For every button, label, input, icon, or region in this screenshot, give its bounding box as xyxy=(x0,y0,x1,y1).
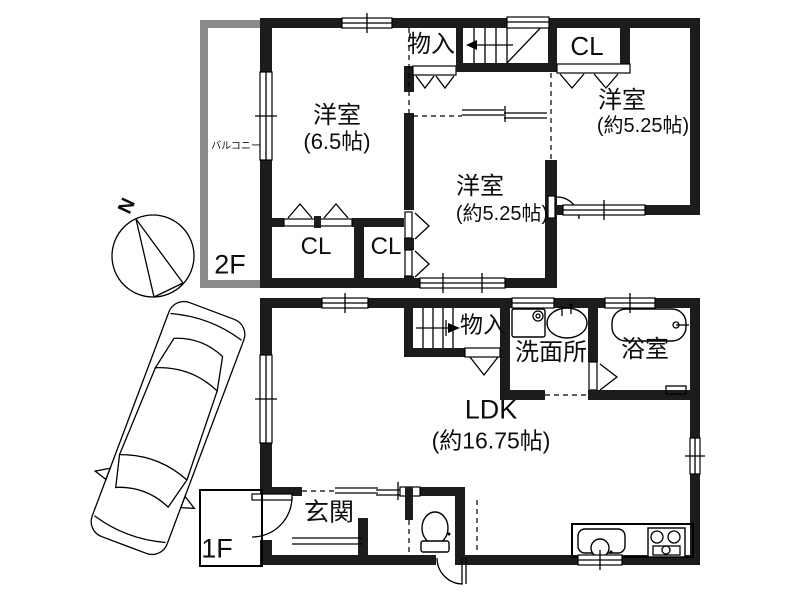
car xyxy=(74,292,261,563)
room-2f-west-name: 洋室 xyxy=(313,104,361,128)
ldk-name-label: LDK xyxy=(465,397,518,424)
kitchen-counter xyxy=(572,524,693,557)
floor-1f-label: 1F xyxy=(201,536,233,563)
washroom-label: 洗面所 xyxy=(515,341,587,365)
floor-plan-page: 洋室 (6.5帖) 物入 CL 洋室 (約5.25帖) 洋室 (約5.25帖) … xyxy=(0,0,800,600)
north-arrow xyxy=(112,215,194,297)
room-2f-mid-name: 洋室 xyxy=(456,175,504,199)
room-2f-west-size: (6.5帖) xyxy=(303,131,370,153)
ldk-size-label: (約16.75帖) xyxy=(432,430,551,453)
storage-1f-label: 物入 xyxy=(460,314,506,337)
room-2f-mid-size: (約5.25帖) xyxy=(456,204,548,224)
closet-2f-sw-label: CL xyxy=(301,235,332,259)
closet-2f-top-label: CL xyxy=(570,33,603,59)
room-2f-east-name: 洋室 xyxy=(598,89,646,113)
washroom-fixtures xyxy=(512,304,587,339)
balcony-label: バルコニー xyxy=(211,142,261,152)
floorplan-canvas xyxy=(0,0,800,600)
bathroom-label: 浴室 xyxy=(621,338,669,362)
room-2f-east-size: (約5.25帖) xyxy=(597,116,689,136)
floor-2f-label: 2F xyxy=(214,252,246,279)
entrance-label: 玄関 xyxy=(304,501,354,526)
closet-2f-s-label: CL xyxy=(371,235,402,259)
stairs-1f-icon xyxy=(416,308,460,348)
storage-2f-label: 物入 xyxy=(407,33,455,57)
balcony-outline xyxy=(200,20,268,288)
